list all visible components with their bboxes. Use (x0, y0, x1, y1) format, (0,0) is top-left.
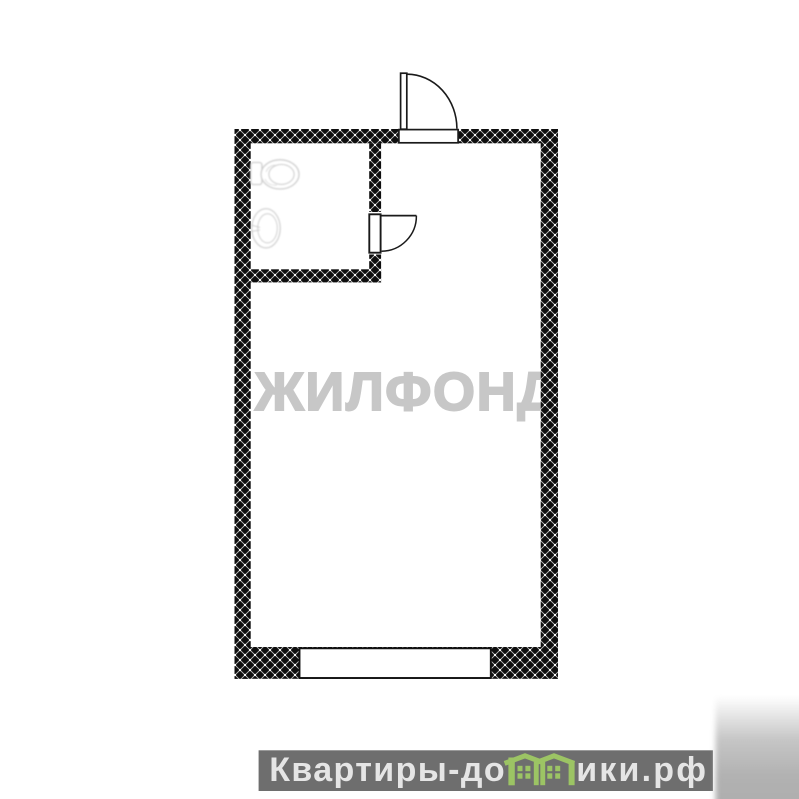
svg-text:ики.рф: ики.рф (576, 751, 708, 789)
svg-text:Квартиры-до: Квартиры-до (269, 751, 506, 789)
svg-text:ЖИЛФОНД: ЖИЛФОНД (254, 362, 557, 422)
